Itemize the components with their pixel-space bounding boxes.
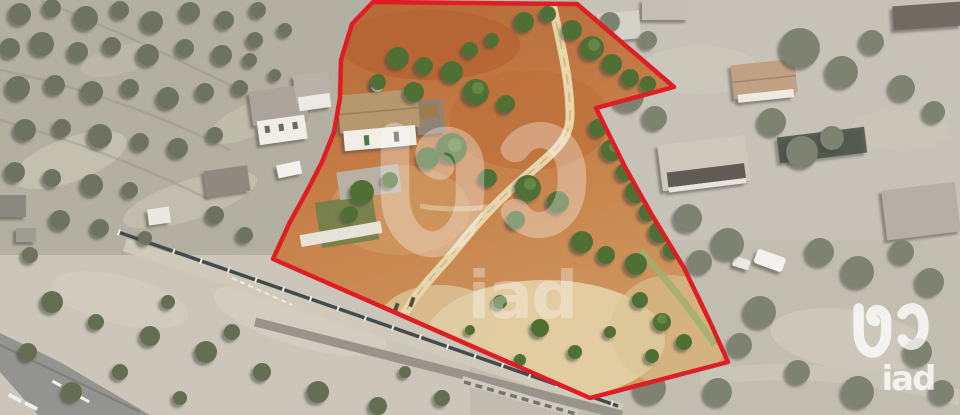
scene: iad iad (0, 0, 960, 415)
iad-logo-text-small: iad (882, 359, 935, 399)
iad-logo-text: iad (468, 257, 576, 334)
aerial-photo: iad iad (0, 0, 960, 415)
